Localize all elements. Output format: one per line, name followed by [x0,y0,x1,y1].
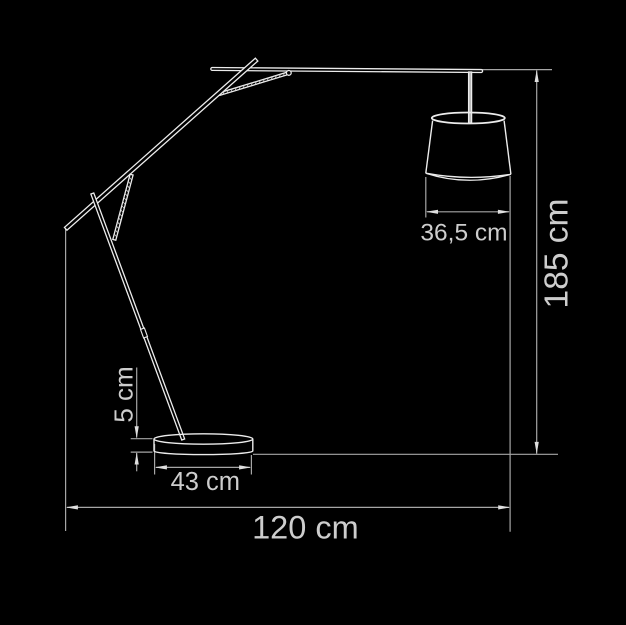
svg-text:120 cm: 120 cm [252,510,359,546]
svg-text:185 cm: 185 cm [539,199,576,309]
svg-text:43 cm: 43 cm [171,468,240,496]
svg-text:5 cm: 5 cm [108,366,138,422]
svg-text:36,5 cm: 36,5 cm [420,220,507,247]
